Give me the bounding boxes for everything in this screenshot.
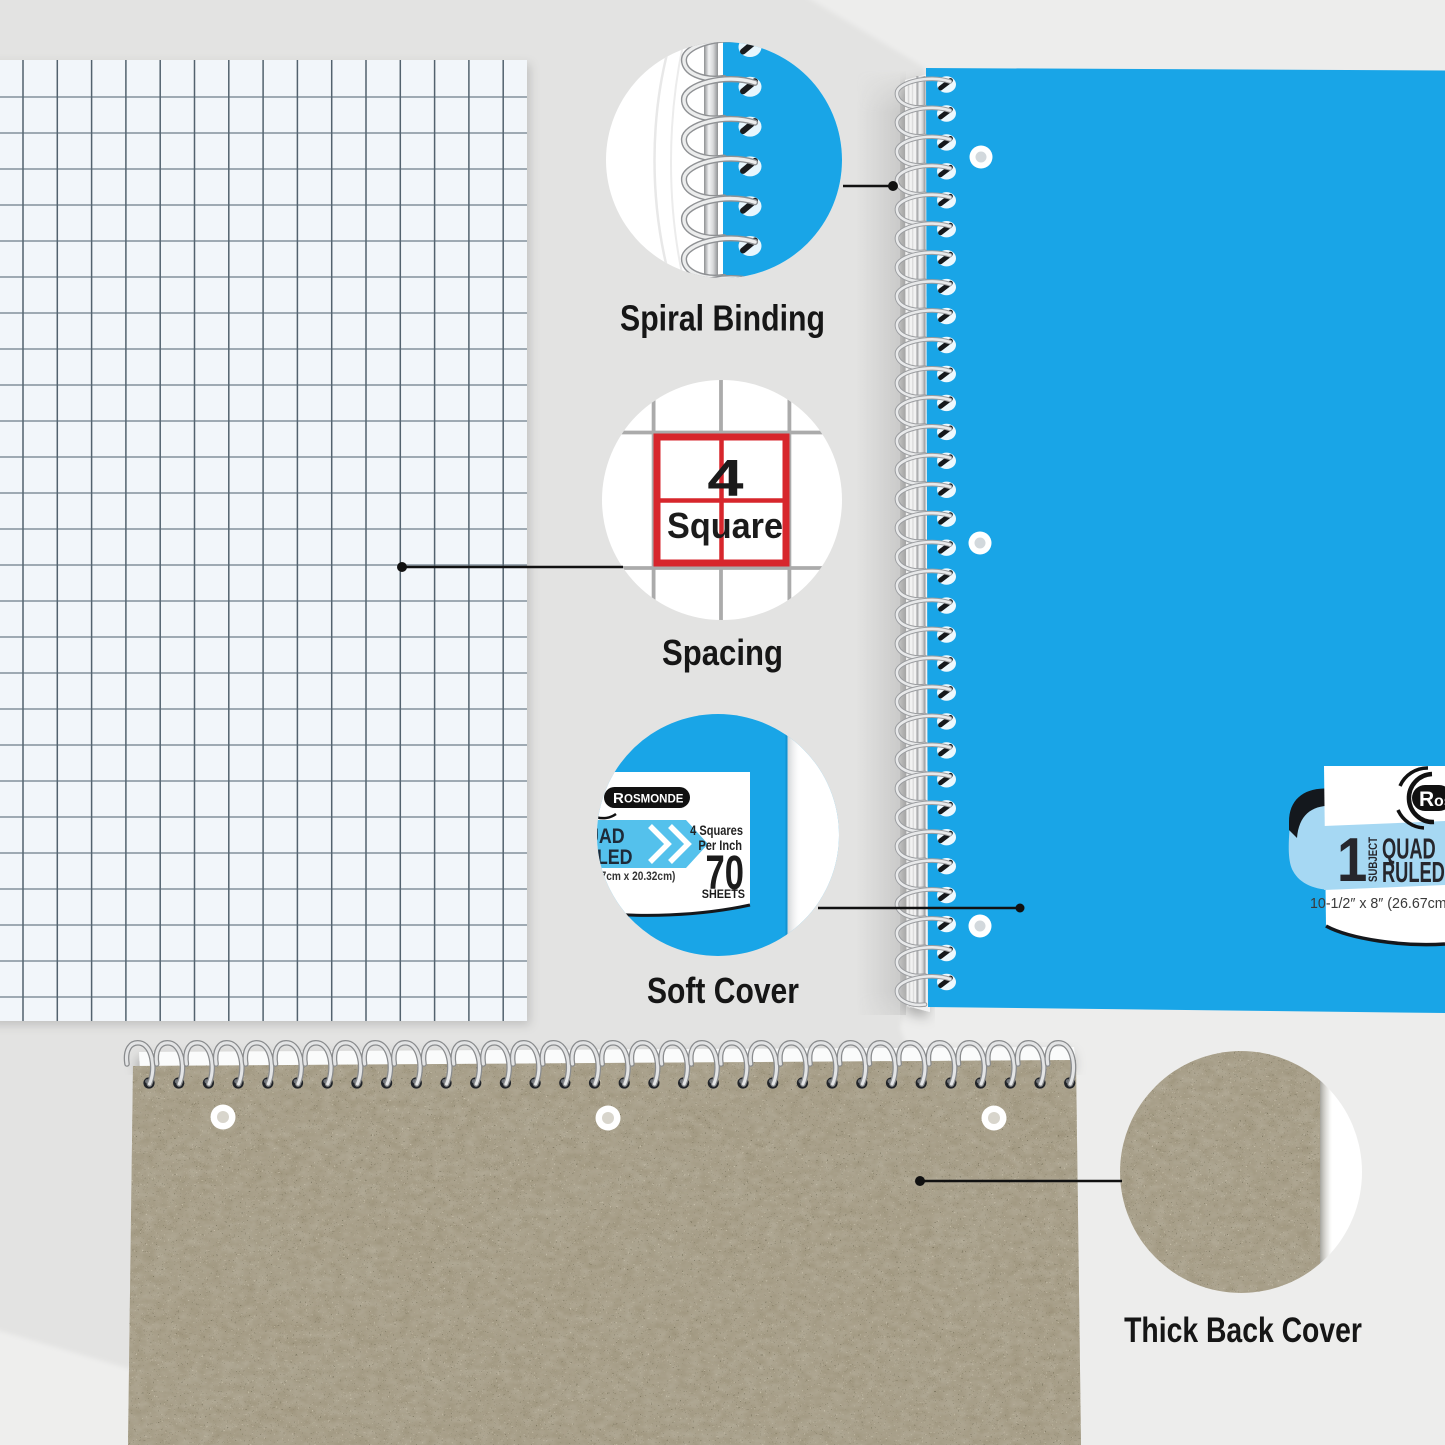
svg-text:Square: Square [667, 506, 783, 546]
svg-text:SUBJECT: SUBJECT [1368, 837, 1380, 882]
svg-text:Soft Cover: Soft Cover [647, 972, 799, 1012]
svg-text:4 Squares: 4 Squares [690, 823, 743, 839]
svg-text:4: 4 [707, 450, 743, 507]
svg-text:SHEETS: SHEETS [702, 889, 746, 902]
svg-text:67cm x 20.32cm): 67cm x 20.32cm) [595, 870, 676, 883]
svg-text:RULED: RULED [1382, 857, 1445, 889]
svg-text:OSMONDE: OSMONDE [624, 794, 684, 806]
svg-text:os: os [1434, 793, 1445, 810]
svg-text:Spiral Binding: Spiral Binding [620, 299, 825, 339]
svg-text:1: 1 [1337, 826, 1367, 895]
svg-text:R: R [613, 790, 624, 807]
svg-text:10-1/2″ x 8″ (26.67cm x 2: 10-1/2″ x 8″ (26.67cm x 2 [1310, 896, 1445, 912]
svg-text:Spacing: Spacing [662, 634, 783, 674]
svg-text:R: R [1419, 788, 1434, 811]
svg-text:Thick Back Cover: Thick Back Cover [1124, 1310, 1362, 1350]
